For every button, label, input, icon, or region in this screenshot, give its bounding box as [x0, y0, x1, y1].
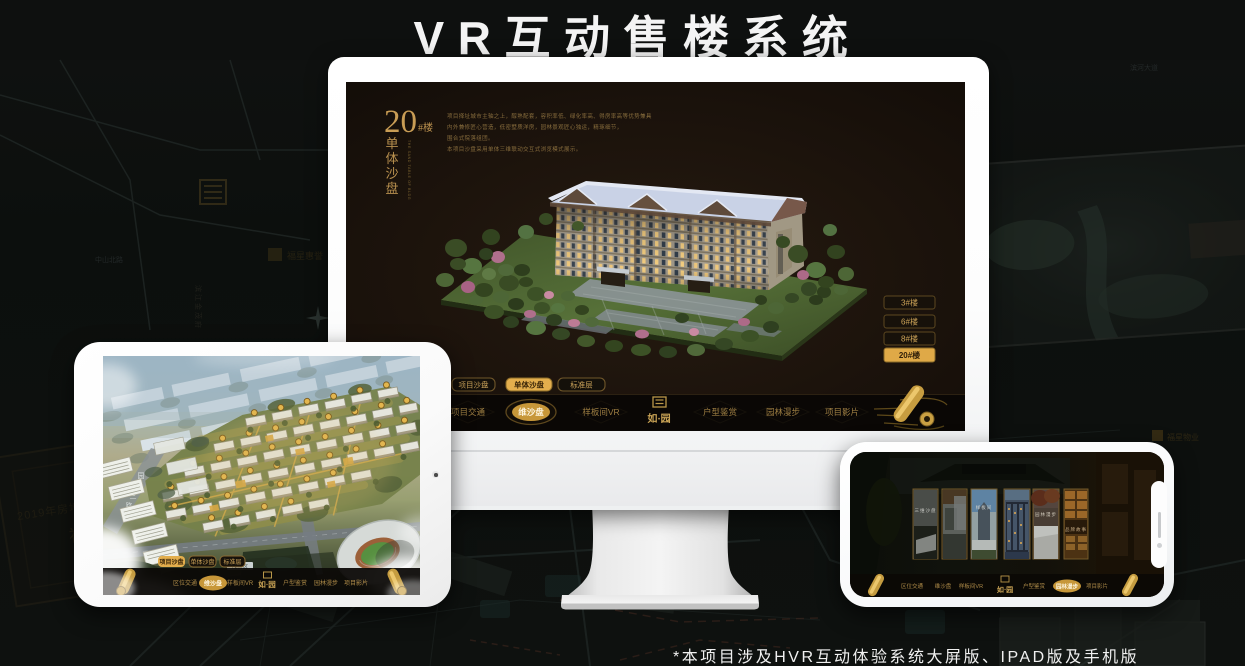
svg-text:园林漫步: 园林漫步: [314, 579, 338, 587]
svg-text:标准层: 标准层: [223, 558, 241, 566]
svg-text:围合式院落组团。: 围合式院落组团。: [447, 134, 494, 142]
svg-text:项目影片: 项目影片: [1086, 582, 1108, 590]
svg-text:项目沙盘: 项目沙盘: [459, 380, 489, 390]
svg-text:盘: 盘: [385, 181, 398, 196]
svg-text:本项目沙盘采用单体三维联动交互式浏览模式展示。: 本项目沙盘采用单体三维联动交互式浏览模式展示。: [447, 145, 582, 153]
svg-text:区位交通: 区位交通: [901, 582, 924, 590]
svg-text:20: 20: [384, 104, 417, 140]
svg-text:项目影片: 项目影片: [344, 579, 368, 587]
svg-text:园林漫步: 园林漫步: [1056, 583, 1079, 591]
svg-text:6#楼: 6#楼: [901, 317, 918, 327]
svg-text:如·园: 如·园: [258, 579, 276, 589]
svg-text:单: 单: [385, 136, 398, 151]
svg-text:户型鉴赏: 户型鉴赏: [283, 579, 307, 587]
svg-text:#楼: #楼: [418, 121, 433, 134]
svg-text:维沙盘: 维沙盘: [518, 407, 544, 417]
svg-text:20#楼: 20#楼: [899, 350, 920, 360]
svg-text:单体沙盘: 单体沙盘: [514, 380, 544, 390]
svg-text:THE SAND TABLE OF BLDG: THE SAND TABLE OF BLDG: [407, 140, 411, 200]
svg-text:样板间VR: 样板间VR: [227, 579, 254, 587]
svg-text:体: 体: [385, 151, 398, 166]
svg-text:样板间VR: 样板间VR: [959, 582, 983, 590]
svg-text:区位交通: 区位交通: [173, 579, 197, 587]
svg-text:维沙盘: 维沙盘: [204, 580, 222, 588]
svg-text:滨江金茂府: 滨江金茂府: [194, 285, 203, 330]
svg-text:内外兼修匠心营造，低密墅质洋房，园林景观匠心独运，精琢细节，: 内外兼修匠心营造，低密墅质洋房，园林景观匠心独运，精琢细节，: [447, 123, 623, 131]
svg-text:沙: 沙: [385, 166, 398, 181]
svg-text:标准层: 标准层: [570, 380, 593, 390]
svg-text:中山北路: 中山北路: [95, 255, 123, 264]
svg-text:项目择址城市主轴之上，醇熟配套，容积率低、绿化率高、得房率高: 项目择址城市主轴之上，醇熟配套，容积率低、绿化率高、得房率高等优势兼具: [447, 112, 652, 120]
svg-text:园林漫步: 园林漫步: [766, 407, 800, 417]
svg-text:项目交通: 项目交通: [451, 407, 486, 417]
svg-text:户型鉴赏: 户型鉴赏: [1023, 582, 1046, 590]
svg-text:维沙盘: 维沙盘: [935, 582, 952, 590]
svg-text:项目影片: 项目影片: [825, 407, 859, 417]
svg-text:单体沙盘: 单体沙盘: [190, 558, 214, 566]
svg-text:户型鉴赏: 户型鉴赏: [703, 407, 737, 417]
svg-text:如·园: 如·园: [997, 585, 1013, 594]
svg-text:样板间VR: 样板间VR: [582, 407, 619, 417]
svg-text:如·园: 如·园: [647, 412, 670, 425]
svg-text:3#楼: 3#楼: [901, 298, 918, 308]
svg-text:福星惠誉: 福星惠誉: [287, 250, 323, 261]
svg-text:8#楼: 8#楼: [901, 334, 918, 344]
svg-text:福星物业: 福星物业: [1167, 432, 1199, 442]
svg-text:项目沙盘: 项目沙盘: [159, 558, 183, 566]
